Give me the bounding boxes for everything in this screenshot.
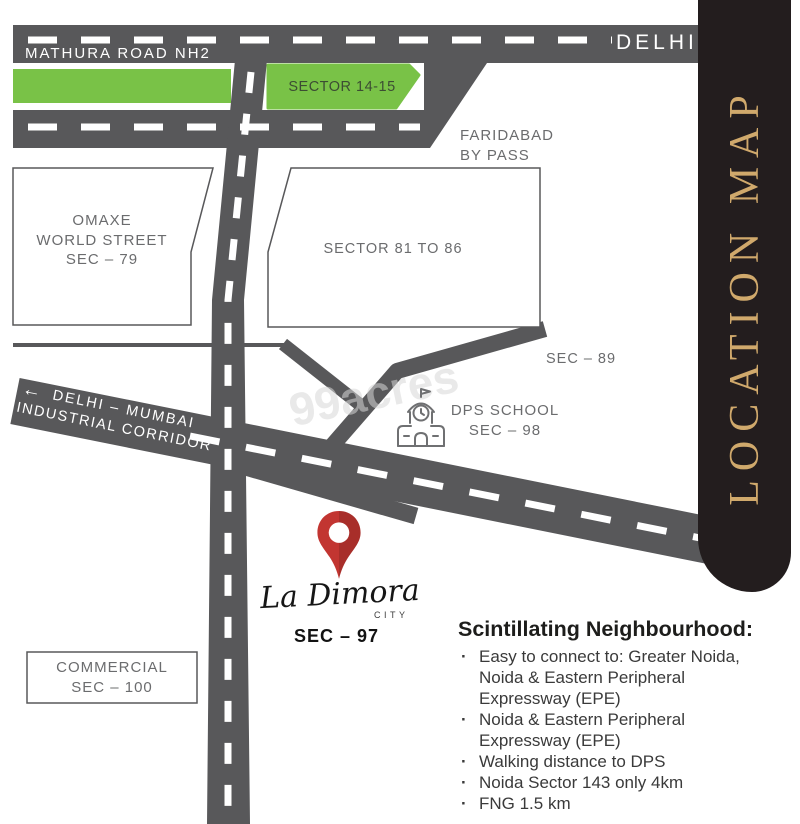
list-item: Walking distance to DPS <box>458 751 754 772</box>
commercial-line1: COMMERCIAL <box>56 658 168 678</box>
school-icon <box>394 385 448 447</box>
neighbourhood-heading: Scintillating Neighbourhood: <box>458 617 753 642</box>
dps-line2: SEC – 98 <box>450 421 560 441</box>
list-item: FNG 1.5 km <box>458 793 754 814</box>
sector-81-86-label: SECTOR 81 TO 86 <box>268 240 540 260</box>
sector-89-label: SEC – 89 <box>546 350 616 370</box>
location-pin-icon <box>314 509 364 583</box>
dps-line1: DPS SCHOOL <box>450 401 560 421</box>
dps-school-label: DPS SCHOOL SEC – 98 <box>450 401 560 440</box>
location-map-page: 99acres MATHURA ROAD NH2 DELHI ← DELHI –… <box>0 0 800 824</box>
location-map-side-panel: LOCATION MAP <box>698 0 791 592</box>
faridabad-line2: BY PASS <box>460 146 554 166</box>
list-item: Noida Sector 143 only 4km <box>458 772 754 793</box>
green-block-nh2 <box>13 69 231 103</box>
left-arrow-icon: ← <box>21 382 42 399</box>
delhi-label: DELHI <box>616 31 698 55</box>
omaxe-line1: OMAXE <box>13 211 191 231</box>
neighbourhood-list: Easy to connect to: Greater Noida, Noida… <box>458 646 754 814</box>
page-title: LOCATION MAP <box>699 6 791 586</box>
project-sector-label: SEC – 97 <box>294 626 379 647</box>
omaxe-line3: SEC – 79 <box>13 250 191 270</box>
mathura-road-label: MATHURA ROAD NH2 <box>25 45 211 62</box>
list-item: Noida & Eastern Peripheral Expressway (E… <box>458 709 754 751</box>
omaxe-line2: WORLD STREET <box>13 231 191 251</box>
commercial-line2: SEC – 100 <box>71 678 153 698</box>
faridabad-line1: FARIDABAD <box>460 126 554 146</box>
project-tagline: CITY <box>374 610 409 620</box>
commercial-sec-100-label: COMMERCIAL SEC – 100 <box>27 652 197 703</box>
list-item: Easy to connect to: Greater Noida, Noida… <box>458 646 754 709</box>
sector-14-15-label: SECTOR 14-15 <box>268 65 416 108</box>
omaxe-world-street-label: OMAXE WORLD STREET SEC – 79 <box>13 211 191 270</box>
faridabad-bypass-label: FARIDABAD BY PASS <box>460 126 554 165</box>
